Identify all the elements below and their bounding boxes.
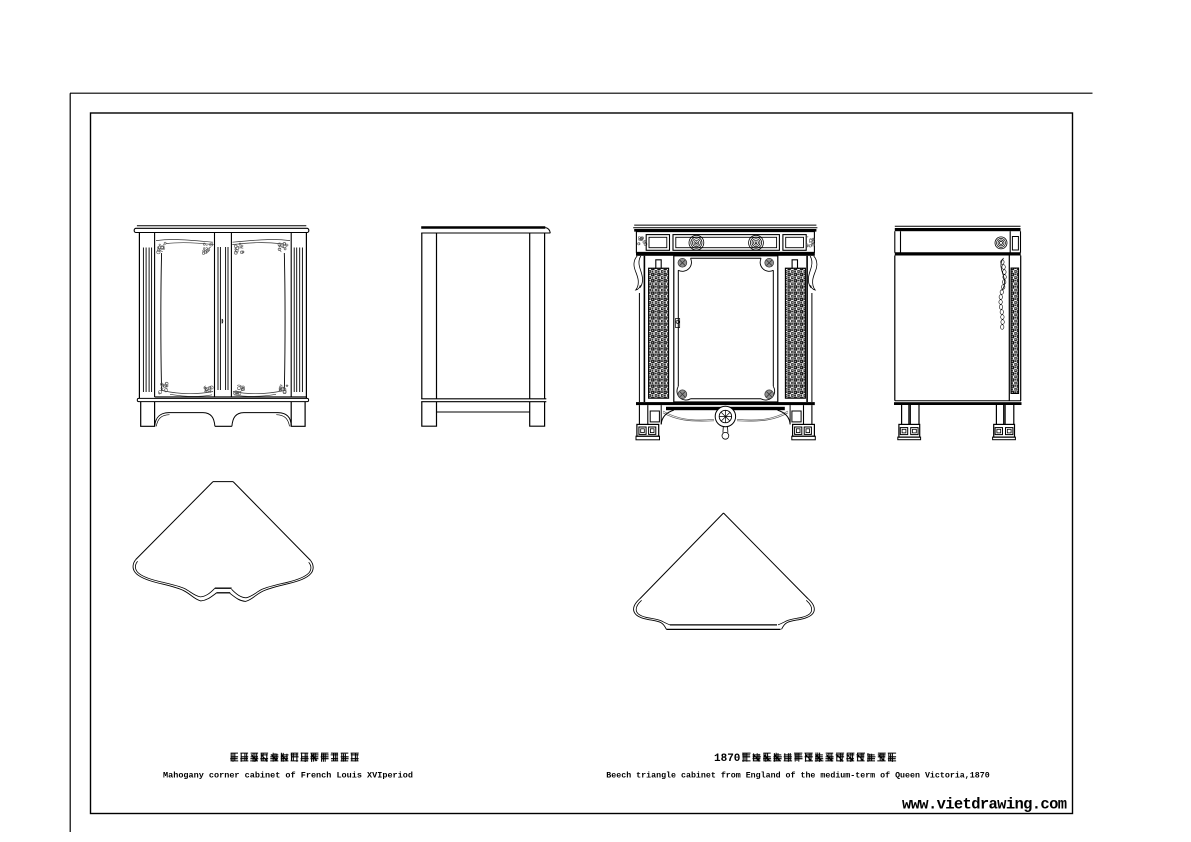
svg-text:Mahogany corner cabinet of Fre: Mahogany corner cabinet of French Louis …: [163, 771, 413, 781]
svg-text:www.vietdrawing.com: www.vietdrawing.com: [902, 796, 1067, 814]
svg-text:1870: 1870: [714, 753, 740, 765]
svg-text:Beech triangle cabinet from En: Beech triangle cabinet from England of t…: [606, 771, 989, 781]
